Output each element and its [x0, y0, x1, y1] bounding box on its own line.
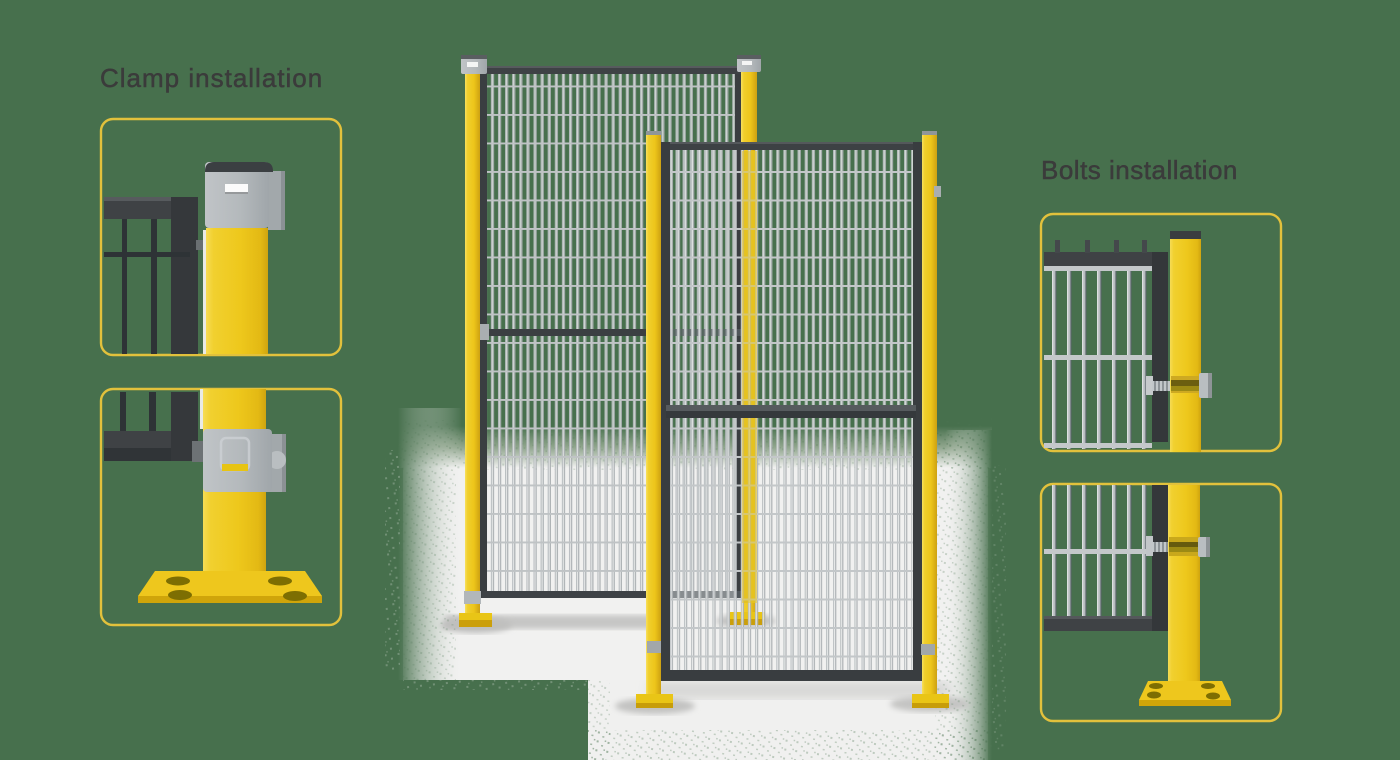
svg-text:Bolts installation: Bolts installation: [1041, 155, 1238, 185]
svg-text:Clamp installation: Clamp installation: [100, 63, 323, 93]
